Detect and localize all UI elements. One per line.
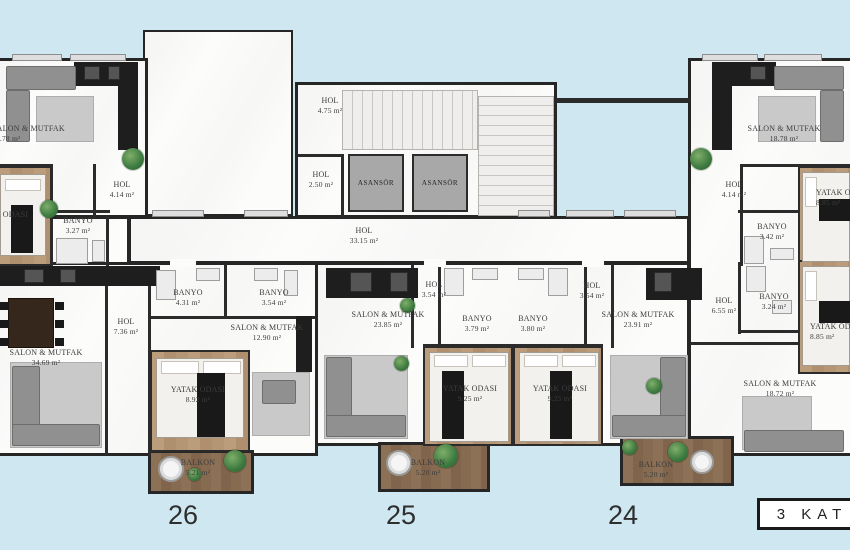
unit-number-26: 26 xyxy=(168,502,198,529)
room-label-balkon-26: BALKON5.21 m² xyxy=(181,458,216,478)
floor-plan-page: { "colors":{ "background":"#cee7f1", "wa… xyxy=(0,0,850,550)
wall xyxy=(738,330,800,333)
staircase-upper xyxy=(342,90,478,150)
wall xyxy=(341,154,344,218)
room-label-balkon-25: BALKON5.20 m² xyxy=(411,458,446,478)
room-label-hol-250: HOL2.50 m² xyxy=(309,170,333,190)
window xyxy=(702,54,758,61)
chair xyxy=(55,338,64,346)
wall xyxy=(106,216,109,266)
wall xyxy=(105,266,108,456)
room-label-banyo-431: BANYO4.31 m² xyxy=(173,288,202,308)
door-opening xyxy=(582,259,604,267)
wall xyxy=(738,262,741,334)
sofa xyxy=(12,424,100,446)
wall xyxy=(738,210,800,213)
sink xyxy=(472,268,498,280)
door-opening xyxy=(170,259,196,267)
dining-table xyxy=(8,298,54,348)
room-label-salon-mutfak-2391: SALON & MUTFAK23.91 m² xyxy=(602,310,675,330)
elevator-left-label: ASANSÖR xyxy=(358,179,394,187)
shower xyxy=(548,268,568,296)
sink-icon xyxy=(60,269,76,283)
wall xyxy=(611,264,614,348)
blanket xyxy=(819,301,850,323)
plant-icon xyxy=(40,200,58,218)
plant-icon xyxy=(622,440,637,455)
wall xyxy=(50,210,110,213)
terrace-block xyxy=(143,30,293,216)
bed xyxy=(802,172,850,262)
room-label-salon-mutfak-2385: SALON & MUTFAK23.85 m² xyxy=(352,310,425,330)
wall xyxy=(0,164,52,167)
room-label-yatak-right-top: YATAK ODASI8.85 m² xyxy=(816,188,850,208)
stove-icon xyxy=(350,272,372,292)
plant-icon xyxy=(224,450,246,472)
room-label-yatak-left: YATAK ODASI8.85 m² xyxy=(0,210,28,230)
stove-icon xyxy=(750,66,766,80)
window xyxy=(12,54,62,61)
window xyxy=(518,210,550,217)
sofa xyxy=(744,430,844,452)
wall xyxy=(690,342,800,345)
wall xyxy=(224,264,227,318)
window xyxy=(764,54,822,61)
wall xyxy=(740,164,850,167)
room-label-yatak-25: YATAK ODASI9.25 m² xyxy=(443,384,497,404)
kitchen-counter xyxy=(118,86,138,150)
sink-icon xyxy=(390,272,408,292)
plant-icon xyxy=(646,378,662,394)
window xyxy=(566,210,614,217)
room-label-salon-mutfak-3469: SALON & MUTFAK34.69 m² xyxy=(10,348,83,368)
room-label-hol-354-25: HOL3.54 m² xyxy=(422,280,446,300)
pillow xyxy=(805,271,817,301)
room-label-salon-mutfak-1872: SALON & MUTFAK18.72 m² xyxy=(744,379,817,399)
pillow xyxy=(5,179,41,191)
sink xyxy=(518,268,544,280)
sofa xyxy=(820,90,844,142)
room-label-hol-354-24: HOL3.54 m² xyxy=(580,281,604,301)
wall xyxy=(150,316,316,319)
balcony-table xyxy=(386,450,412,476)
room-label-banyo-354-26: BANYO3.54 m² xyxy=(259,288,288,308)
plant-icon xyxy=(122,148,144,170)
room-label-banyo-left: BANYO3.27 m² xyxy=(63,216,92,236)
elevator-right: ASANSÖR xyxy=(412,154,468,212)
plant-icon xyxy=(690,148,712,170)
sofa xyxy=(326,415,406,437)
room-label-banyo-342: BANYO3.42 m² xyxy=(757,222,786,242)
window xyxy=(152,210,204,217)
room-label-hol-475: HOL4.75 m² xyxy=(318,96,342,116)
kitchen-counter xyxy=(712,62,776,86)
window xyxy=(244,210,288,217)
blanket xyxy=(442,371,464,439)
room-label-yatak-26: YATAK ODASI8.92 m² xyxy=(171,385,225,405)
unit-number-24: 24 xyxy=(608,502,638,529)
room-label-salon-mutfak-1290: SALON & MUTFAK12.90 m² xyxy=(231,323,304,343)
stove-icon xyxy=(654,272,672,292)
room-label-banyo-324: BANYO3.24 m² xyxy=(759,292,788,312)
sofa xyxy=(774,66,844,90)
chair xyxy=(55,302,64,310)
sink xyxy=(254,268,278,281)
room-label-hol-left: HOL4.14 m² xyxy=(110,180,134,200)
wall xyxy=(148,266,151,456)
sofa xyxy=(612,415,686,437)
floor-badge-label: 3 KAT xyxy=(777,507,848,522)
room-label-yatak-right-bottom: YATAK ODASI8.85 m² xyxy=(810,322,850,342)
wall xyxy=(584,264,587,346)
pillow xyxy=(161,361,199,374)
balcony-table xyxy=(690,450,714,474)
chair xyxy=(0,338,9,346)
staircase-lower xyxy=(478,96,554,216)
room-label-hol-655: HOL6.55 m² xyxy=(712,296,736,316)
room-label-salon-mutfak-left-top: SALON & MUTFAK18.78 m² xyxy=(0,124,65,144)
room-label-banyo-379: BANYO3.79 m² xyxy=(462,314,491,334)
window xyxy=(624,210,676,217)
sink-icon xyxy=(108,66,120,80)
elevator-right-label: ASANSÖR xyxy=(422,179,458,187)
room-label-balkon-24: BALKON5.20 m² xyxy=(639,460,674,480)
wall xyxy=(93,164,96,218)
kitchen-counter xyxy=(712,86,732,150)
sink xyxy=(196,268,220,281)
pillow xyxy=(472,355,506,367)
chair xyxy=(0,320,9,328)
corridor-slab xyxy=(128,216,690,264)
plant-icon xyxy=(394,356,409,371)
room-label-salon-mutfak-right-top: SALON & MUTFAK18.78 m² xyxy=(748,124,821,144)
void-parapet-wall xyxy=(555,98,690,103)
bed xyxy=(802,266,850,366)
elevator-left: ASANSÖR xyxy=(348,154,404,212)
stove-icon xyxy=(84,66,100,80)
chair xyxy=(55,320,64,328)
room-label-hol-736: HOL7.36 m² xyxy=(114,317,138,337)
room-label-hol-corridor: HOL33.15 m² xyxy=(350,226,378,246)
pillow xyxy=(524,355,558,367)
pillow xyxy=(434,355,468,367)
toilet xyxy=(92,240,105,262)
room-label-yatak-24: YATAK ODASI9.25 m² xyxy=(533,384,587,404)
window xyxy=(70,54,126,61)
shower xyxy=(746,266,766,292)
door-opening xyxy=(424,259,446,267)
stove-icon xyxy=(24,269,44,283)
pillow xyxy=(562,355,596,367)
wall xyxy=(296,154,344,157)
sofa xyxy=(6,66,76,90)
room-label-banyo-380: BANYO3.80 m² xyxy=(518,314,547,334)
chair xyxy=(0,302,9,310)
wall xyxy=(423,344,603,347)
blanket xyxy=(550,371,572,439)
room-label-hol-right: HOL4.14 m² xyxy=(722,180,746,200)
plant-icon xyxy=(668,442,688,462)
sink xyxy=(770,248,794,260)
shower xyxy=(444,268,464,296)
armchair xyxy=(262,380,296,404)
shower xyxy=(56,238,88,264)
unit-number-25: 25 xyxy=(386,502,416,529)
floor-badge: 3 KAT xyxy=(757,498,850,530)
wall xyxy=(438,264,441,346)
